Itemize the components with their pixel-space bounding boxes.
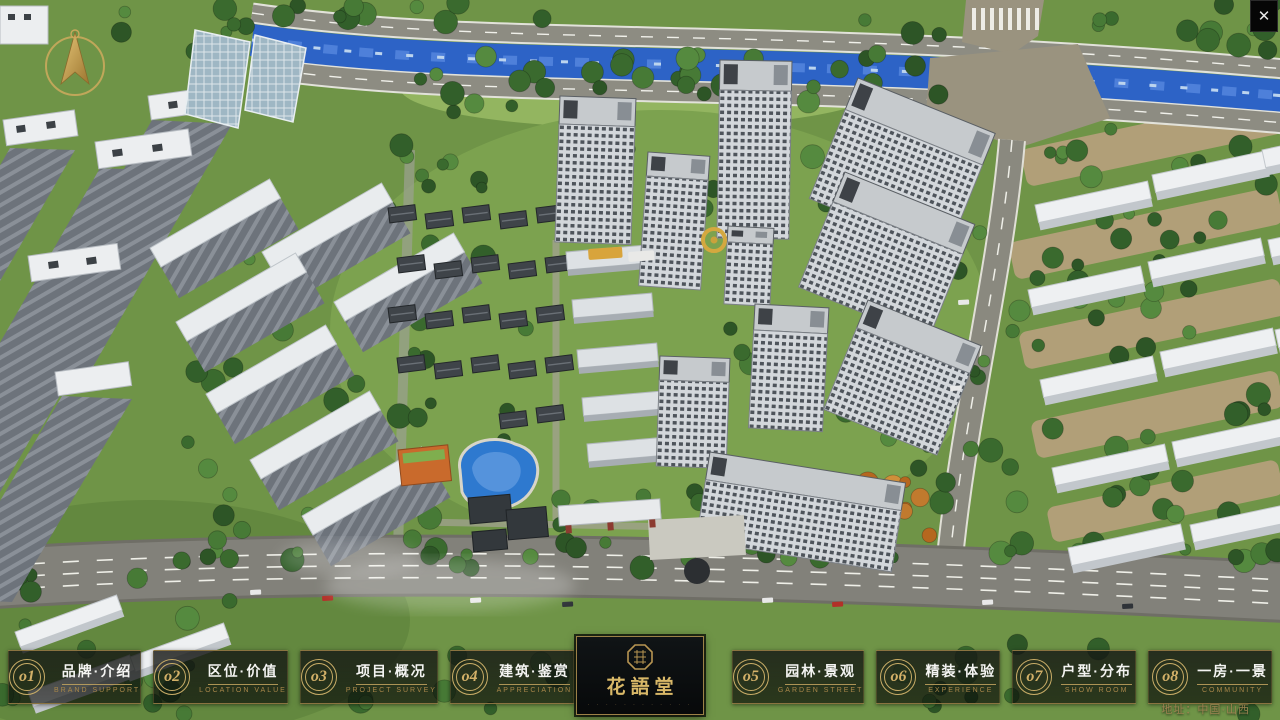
nav-sublabel: BRAND SUPPORT [54,687,140,694]
nav-label: 品牌·介绍 [62,661,133,685]
nav-label: 精装·体验 [925,661,996,685]
close-icon: ✕ [1258,7,1271,25]
nav-item-project[interactable]: o3 项目·概况 PROJECT SURVEY [300,650,438,704]
nav-sublabel: GARDEN STREET [778,687,864,694]
app-window: ✕ o1 品牌·介绍 BRAND SUPPORT o2 区位·价值 LOCATI… [0,0,1280,720]
nav-sublabel: APPRECIATION [497,687,573,694]
compass-icon [36,22,114,104]
nav-sublabel: SHOW ROOM [1065,687,1129,694]
brand-seal-icon [627,644,653,670]
nav-sublabel: PROJECT SURVEY [346,687,437,694]
nav-number-badge: o3 [301,659,337,695]
nav-sublabel: COMMUNITY [1202,687,1263,694]
nav-label: 项目·概况 [356,661,427,685]
nav-item-brand[interactable]: o1 品牌·介绍 BRAND SUPPORT [8,650,141,704]
brand-title: 花語堂 [601,672,678,699]
nav-item-views[interactable]: o8 一房·一景 COMMUNITY [1148,650,1272,704]
brand-tagline: · · · · · · · · · · · · [588,702,692,708]
nav-item-garden[interactable]: o5 园林·景观 GARDEN STREET [732,650,865,704]
masterplan-render [0,0,1280,720]
close-button[interactable]: ✕ [1250,0,1278,32]
nav-number-badge: o2 [154,659,190,695]
nav-item-architecture[interactable]: o4 建筑·鉴赏 APPRECIATION [450,650,574,704]
nav-number-badge: o6 [880,659,916,695]
nav-sublabel: EXPERIENCE [928,687,993,694]
nav-number-badge: o4 [452,659,488,695]
nav-number-badge: o1 [9,659,45,695]
nav-label: 园林·景观 [785,661,856,685]
nav-label: 一房·一景 [1197,661,1268,685]
nav-label: 区位·价值 [208,661,279,685]
nav-label: 建筑·鉴赏 [499,661,570,685]
nav-number-badge: o5 [733,659,769,695]
address-label: 地址：中国·山西 [1161,701,1250,717]
nav-item-interior[interactable]: o6 精装·体验 EXPERIENCE [876,650,1000,704]
nav-number-badge: o8 [1152,659,1188,695]
nav-sublabel: LOCATION VALUE [199,687,287,694]
nav-number-badge: o7 [1016,659,1052,695]
nav-item-floorplan[interactable]: o7 户型·分布 SHOW ROOM [1012,650,1136,704]
nav-item-location[interactable]: o2 区位·价值 LOCATION VALUE [153,650,288,704]
brand-logo-panel[interactable]: 花語堂 · · · · · · · · · · · · [576,636,704,715]
nav-label: 户型·分布 [1061,661,1132,685]
